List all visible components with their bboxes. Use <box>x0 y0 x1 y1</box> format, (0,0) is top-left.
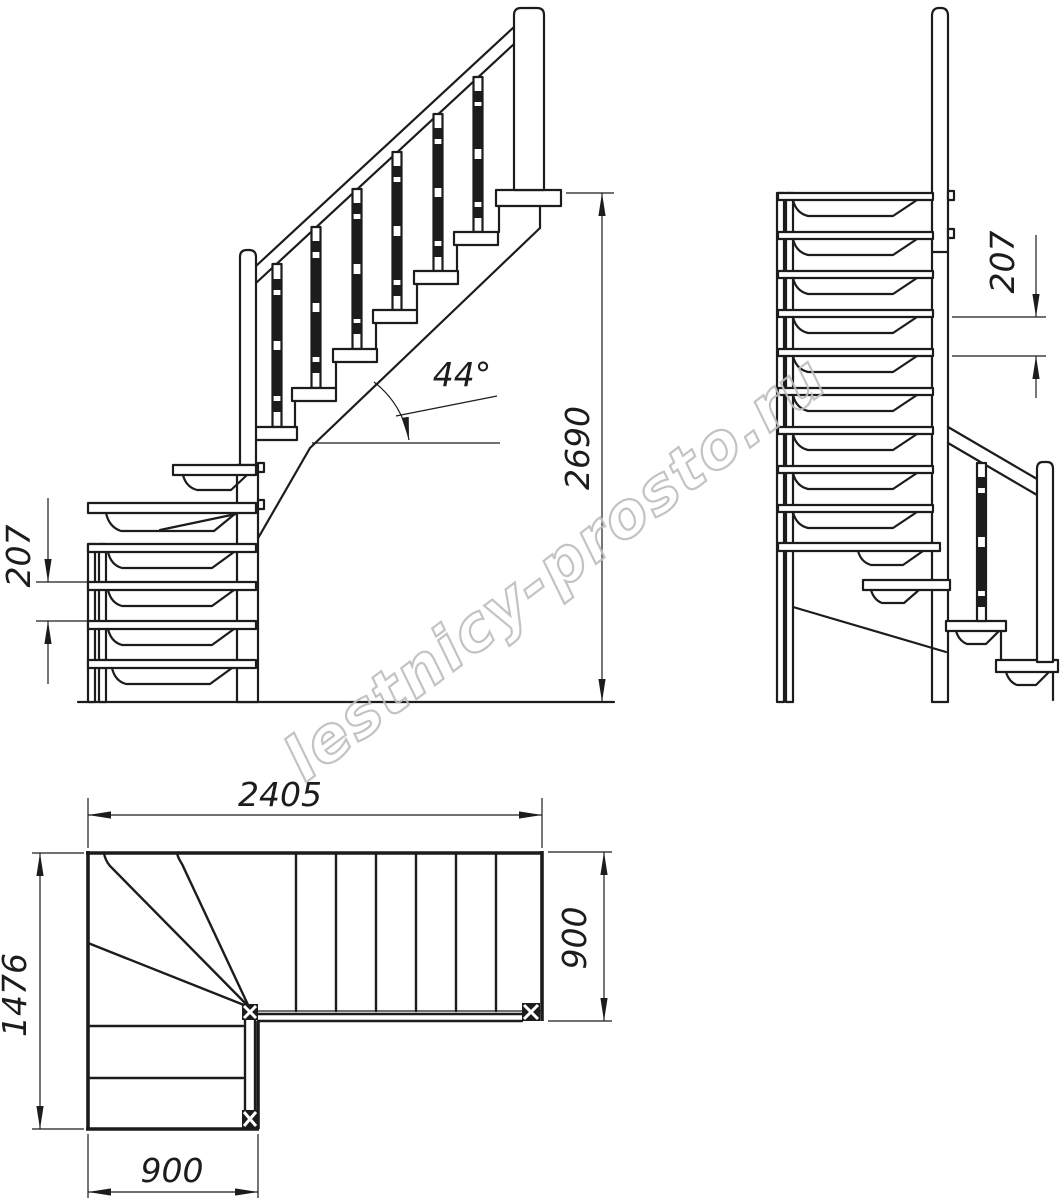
plan-outline <box>86 851 542 1130</box>
plan-newel-bottom <box>242 1110 258 1128</box>
plan-lower-width-label: 900 <box>141 1151 204 1190</box>
dimension-front-step-rise: 207 <box>952 231 1046 399</box>
plan-width-label: 1476 <box>0 953 34 1037</box>
plan-newel-center <box>242 1004 258 1020</box>
plan-view: 2405 1476 900 900 <box>0 775 612 1198</box>
plan-winder-lines <box>88 853 249 1007</box>
staircase-drawing: 207 2690 44° <box>0 0 1060 1204</box>
dimension-total-height: 2690 <box>558 193 614 702</box>
dimension-plan-width: 1476 <box>0 853 84 1129</box>
watermark: lestnicy-prosto.ru <box>270 340 840 795</box>
front-elevation-view: 207 <box>777 8 1058 702</box>
front-left-stile <box>777 193 784 702</box>
front-small-post <box>1037 462 1053 662</box>
plan-railing <box>245 1014 522 1110</box>
front-lower-steps <box>793 580 1058 700</box>
watermark-text: lestnicy-prosto.ru <box>270 340 840 795</box>
stair-angle-label: 44° <box>433 355 492 394</box>
side-step-rise-label: 207 <box>0 525 38 588</box>
top-newel-post <box>514 8 544 190</box>
plan-upper-treads <box>258 853 542 1011</box>
front-newel-post <box>932 8 954 702</box>
plan-flight-width-label: 900 <box>555 907 594 970</box>
front-step-rise-label: 207 <box>983 231 1022 294</box>
dimension-plan-flight-width: 900 <box>548 852 612 1021</box>
total-height-label: 2690 <box>558 406 597 490</box>
dimension-plan-lower-width: 900 <box>88 1134 258 1198</box>
plan-newel-flight-end <box>522 1003 540 1021</box>
dimension-side-step-rise: 207 <box>0 498 92 684</box>
angle-annotation: 44° <box>312 355 500 443</box>
upper-flight-treads <box>246 190 561 440</box>
winder-steps-side <box>88 465 256 702</box>
drawing-canvas: 207 2690 44° <box>0 0 1060 1204</box>
